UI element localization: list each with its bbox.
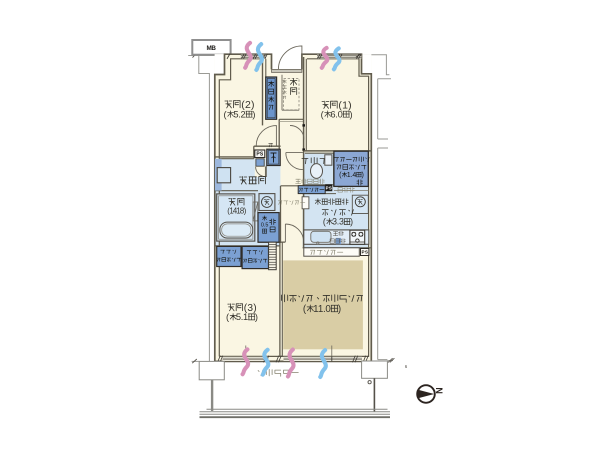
svg-text:2: 2: [241, 109, 246, 119]
svg-text:): ): [252, 109, 255, 119]
svg-text:N: N: [434, 387, 444, 394]
svg-text:S: S: [365, 250, 368, 255]
svg-text:4: 4: [352, 171, 356, 179]
svg-text:B: B: [211, 45, 216, 52]
svg-text:0: 0: [325, 304, 331, 315]
svg-text:): ): [362, 171, 364, 179]
svg-text:0: 0: [338, 109, 343, 119]
svg-text:): ): [350, 217, 353, 227]
svg-text:): ): [244, 207, 247, 216]
svg-text:1: 1: [243, 312, 248, 322]
svg-text:0.5: 0.5: [261, 223, 269, 229]
svg-text:): ): [338, 304, 341, 315]
svg-text:3: 3: [339, 217, 344, 227]
svg-text:(: (: [323, 217, 326, 227]
svg-text:): ): [349, 109, 352, 119]
svg-text:S: S: [329, 185, 332, 190]
svg-text:): ): [255, 312, 258, 322]
